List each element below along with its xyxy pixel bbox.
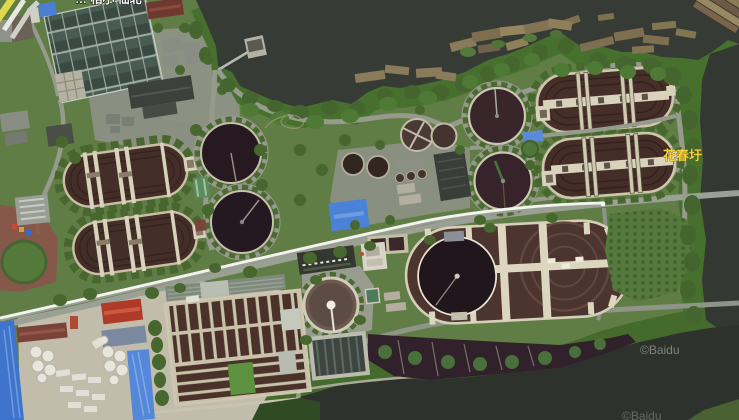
svg-text:©Baidu: ©Baidu: [640, 343, 680, 357]
svg-text:花春圩: 花春圩: [663, 148, 702, 163]
svg-text:©Baidu: ©Baidu: [622, 409, 662, 420]
svg-text:… 相小 仙北: … 相小 仙北: [75, 0, 142, 6]
